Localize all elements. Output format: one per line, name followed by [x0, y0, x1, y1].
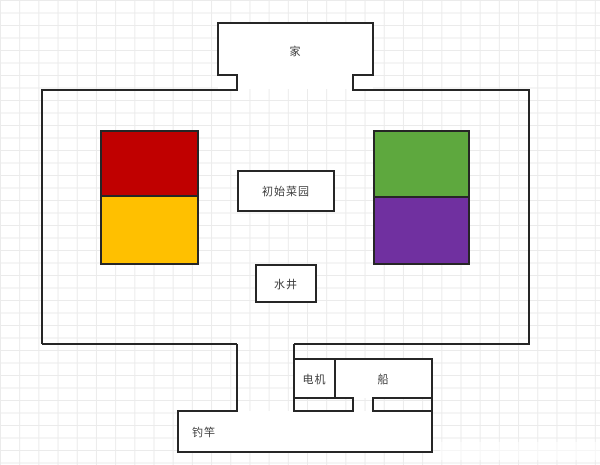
home-room: 家 — [218, 23, 373, 79]
farm-map-canvas: 初始菜园 水井 家 电机 船 钓竿 — [0, 0, 600, 465]
home-label: 家 — [290, 43, 302, 59]
garden-label: 初始菜园 — [262, 183, 310, 199]
boat-label: 船 — [378, 371, 390, 387]
watermark-smudge — [440, 442, 600, 460]
fishing-dock: 钓竿 — [178, 411, 432, 452]
well-box: 水井 — [255, 264, 317, 303]
motor-label: 电机 — [303, 371, 327, 387]
garden-box: 初始菜园 — [237, 170, 335, 212]
motor-room: 电机 — [294, 359, 335, 398]
boat-room: 船 — [335, 359, 432, 398]
boat-room-outline — [373, 398, 432, 411]
fishing-rod-label: 钓竿 — [192, 424, 216, 440]
well-label: 水井 — [274, 276, 298, 292]
